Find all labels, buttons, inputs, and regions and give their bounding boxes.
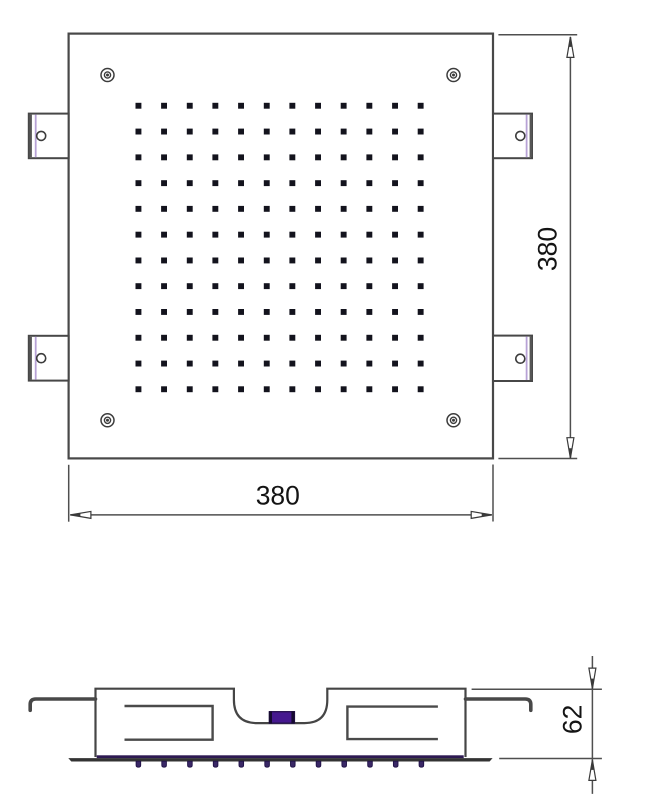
- svg-text:62: 62: [558, 705, 588, 734]
- svg-text:380: 380: [256, 481, 300, 511]
- svg-text:380: 380: [533, 227, 563, 271]
